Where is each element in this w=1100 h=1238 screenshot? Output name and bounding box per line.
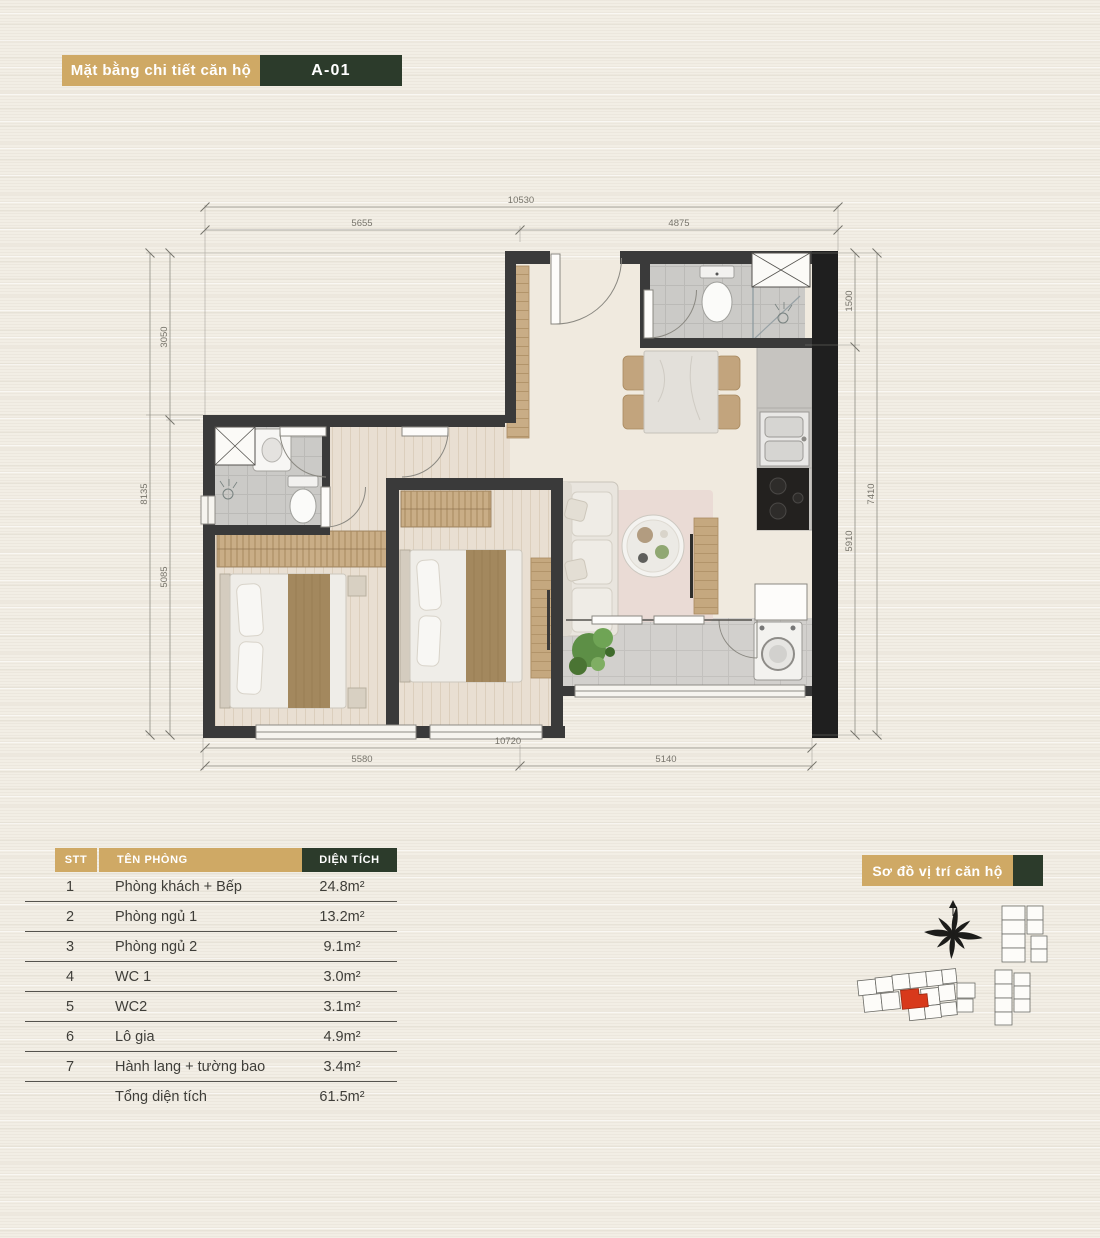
unit-code-badge: A-01 <box>260 55 402 86</box>
dim-left-total: 8135 <box>139 483 150 504</box>
location-banner: Sơ đồ vị trí căn hộ <box>862 855 1043 886</box>
room-name: Lô gia <box>115 1029 287 1045</box>
table-row: 1 Phòng khách + Bếp 24.8m² <box>25 872 397 902</box>
header-area: DIỆN TÍCH <box>302 848 397 872</box>
dim-bottom-right: 5140 <box>655 754 676 765</box>
coffee-table <box>622 515 684 577</box>
table-row: 3 Phòng ngủ 2 9.1m² <box>25 932 397 962</box>
row-number: 1 <box>25 879 115 895</box>
floor-plan: 10530 5655 4875 8135 3050 5085 1500 5910… <box>130 185 900 785</box>
bedroom2-cabinet <box>531 558 552 678</box>
wardrobe-bedroom1 <box>217 531 388 567</box>
washing-machine <box>754 622 802 680</box>
bed-2 <box>400 550 522 682</box>
room-area: 3.1m² <box>287 999 397 1015</box>
row-number: 2 <box>25 909 115 925</box>
dim-right-bottom: 5910 <box>844 530 855 551</box>
total-label: Tổng diện tích <box>115 1089 287 1105</box>
dim-left-top: 3050 <box>159 326 170 347</box>
room-name: Phòng ngủ 2 <box>115 939 287 955</box>
table-row: 5 WC2 3.1m² <box>25 992 397 1022</box>
room-area: 3.4m² <box>287 1059 397 1075</box>
dim-top-right: 4875 <box>668 218 689 229</box>
tv-console <box>690 518 718 614</box>
room-name: WC2 <box>115 999 287 1015</box>
dim-right-top: 1500 <box>844 290 855 311</box>
room-area: 3.0m² <box>287 969 397 985</box>
table-row: 6 Lô gia 4.9m² <box>25 1022 397 1052</box>
table-row: 7 Hành lang + tường bao 3.4m² <box>25 1052 397 1082</box>
header-stt: STT <box>55 848 97 872</box>
title-banner: Mặt bằng chi tiết căn hộ A-01 <box>62 55 402 86</box>
dim-left-bottom: 5085 <box>159 566 170 587</box>
table-row: 2 Phòng ngủ 1 13.2m² <box>25 902 397 932</box>
row-number: 5 <box>25 999 115 1015</box>
page-title: Mặt bằng chi tiết căn hộ <box>62 55 260 86</box>
dim-right-total: 7410 <box>866 483 877 504</box>
row-number: 3 <box>25 939 115 955</box>
table-total-row: Tổng diện tích 61.5m² <box>25 1082 397 1111</box>
room-name: Phòng ngủ 1 <box>115 909 287 925</box>
dim-bottom-left: 5580 <box>351 754 372 765</box>
wardrobe-bedroom2 <box>401 491 491 527</box>
room-area: 4.9m² <box>287 1029 397 1045</box>
room-name: Phòng khách + Bếp <box>115 879 287 895</box>
dim-bottom-total: 10720 <box>495 736 521 747</box>
row-number: 4 <box>25 969 115 985</box>
site-location-map <box>845 890 1095 1120</box>
area-table-rows: 1 Phòng khách + Bếp 24.8m² 2 Phòng ngủ 1… <box>25 872 397 1082</box>
table-row: 4 WC 1 3.0m² <box>25 962 397 992</box>
location-title: Sơ đồ vị trí căn hộ <box>862 855 1013 886</box>
bed-1 <box>220 574 366 708</box>
area-table-header: STT TÊN PHÒNG DIỆN TÍCH <box>55 848 397 872</box>
header-room: TÊN PHÒNG <box>99 848 302 872</box>
compass-star <box>924 900 983 959</box>
dim-top-left: 5655 <box>351 218 372 229</box>
room-area: 13.2m² <box>287 909 397 925</box>
cooktop <box>757 468 809 530</box>
dim-top-total: 10530 <box>508 195 534 206</box>
room-area: 24.8m² <box>287 879 397 895</box>
row-number: 6 <box>25 1029 115 1045</box>
location-badge <box>1013 855 1043 886</box>
row-number: 7 <box>25 1059 115 1075</box>
sofa <box>556 482 618 636</box>
total-area: 61.5m² <box>287 1089 397 1105</box>
area-table: STT TÊN PHÒNG DIỆN TÍCH 1 Phòng khách + … <box>25 848 397 1111</box>
room-area: 9.1m² <box>287 939 397 955</box>
room-name: Hành lang + tường bao <box>115 1059 287 1075</box>
room-name: WC 1 <box>115 969 287 985</box>
